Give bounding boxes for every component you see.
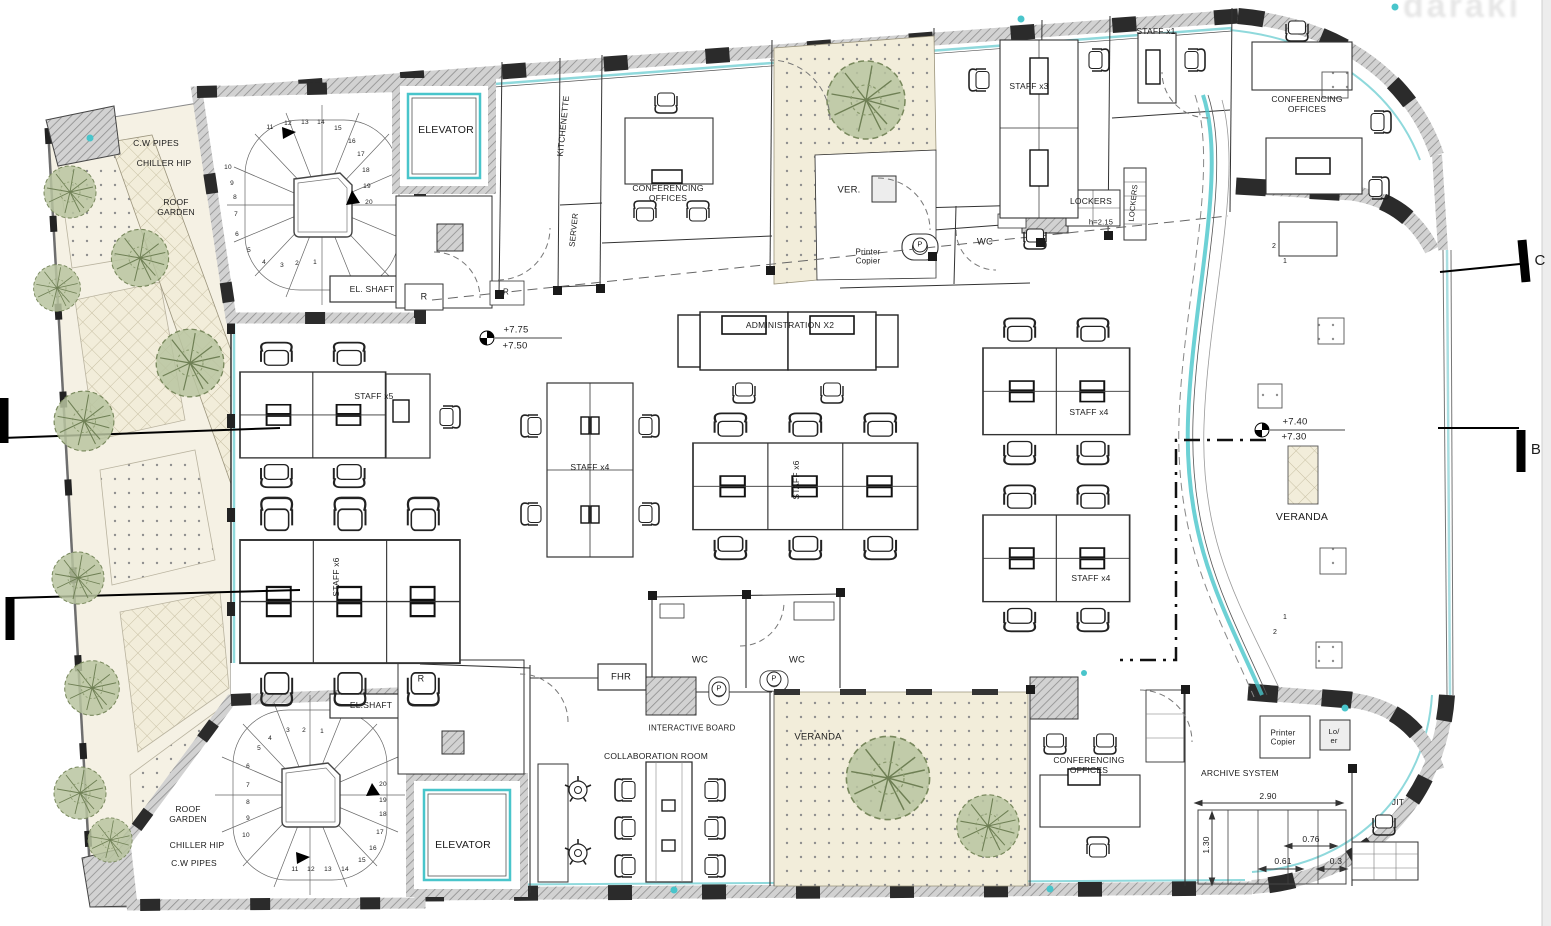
wc-sink-bottom-2: [794, 602, 834, 620]
fhr-box: [598, 664, 646, 690]
printer-bottom-2: [760, 671, 788, 691]
wc-sink-bottom-1: [660, 604, 684, 618]
desk-pod-staff-x6-left: [240, 498, 460, 705]
elevator-bottom: [410, 777, 524, 893]
stair-block-top: [197, 86, 420, 318]
section-marker-b: [1438, 428, 1521, 472]
floor-plan-canvas: C.W PIPESCHILLER HIPROOF GARDENEL. SHAFT…: [0, 0, 1551, 926]
desk-pod-staff-x6-center: [693, 413, 918, 559]
interactive-board-block: [646, 677, 696, 715]
floorplan-drawing: [0, 0, 1551, 926]
teal-dot: [87, 135, 94, 142]
section-marker-c: [1440, 240, 1526, 282]
printer-bottom-1: [709, 677, 729, 705]
page-edge: [1542, 0, 1551, 926]
elevator-top: [396, 82, 492, 190]
veranda-bottom-court: [774, 692, 1028, 886]
